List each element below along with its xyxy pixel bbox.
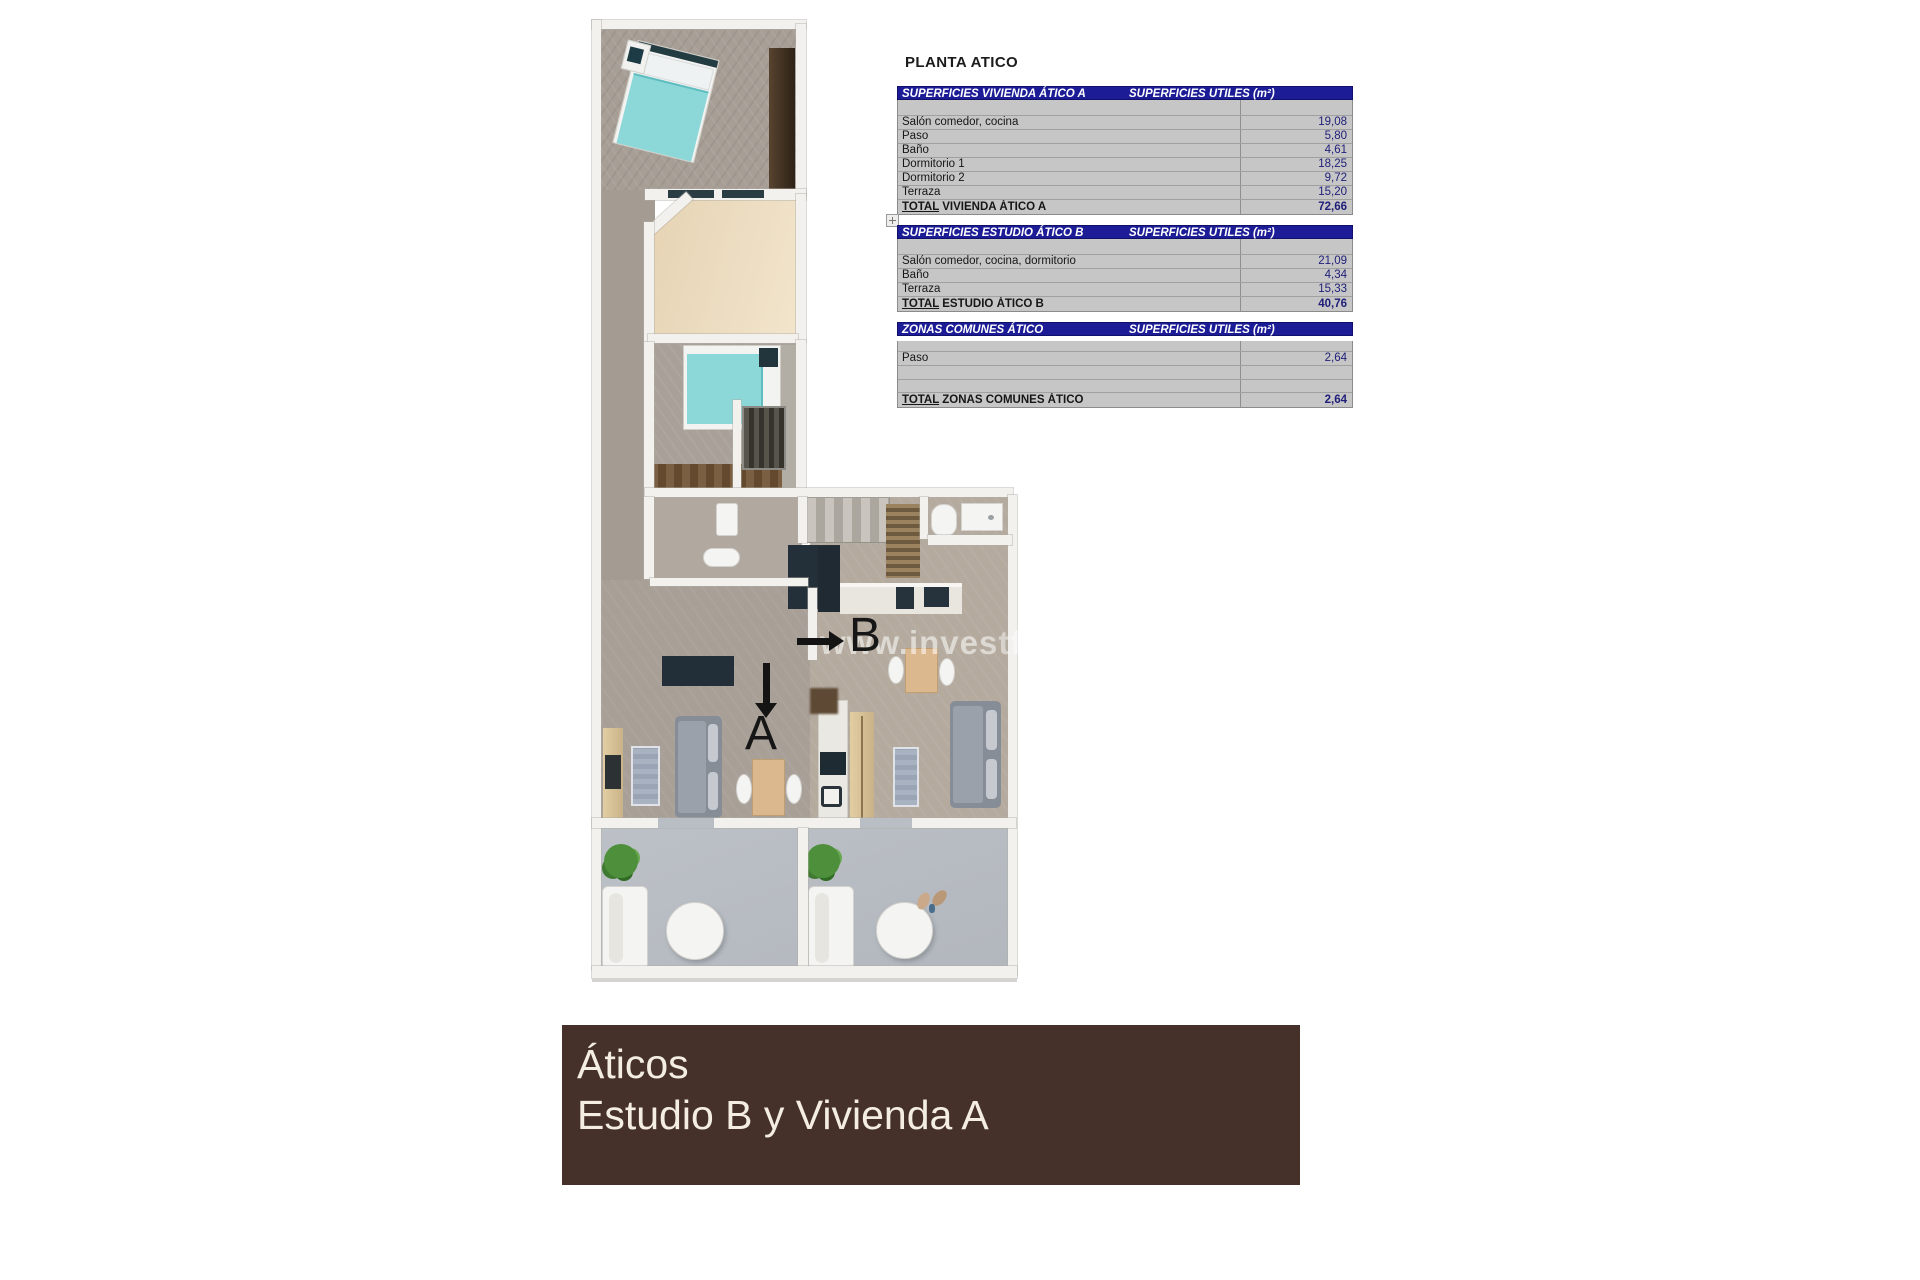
single-bed-headboard bbox=[759, 348, 778, 367]
table-row: Salón comedor, cocina, dormitorio21,09 bbox=[898, 255, 1352, 269]
plant-icon bbox=[806, 844, 840, 878]
table-row: Baño4,34 bbox=[898, 269, 1352, 283]
table-header: SUPERFICIES VIVIENDA ÁTICO A SUPERFICIES… bbox=[897, 86, 1353, 100]
table-row-empty bbox=[898, 100, 1352, 116]
hob-a-icon bbox=[820, 752, 846, 775]
total-rest: ZONAS COMUNES ÁTICO bbox=[939, 394, 1083, 406]
sofa-b-pillow bbox=[986, 710, 997, 750]
wall-bottom bbox=[592, 966, 1017, 978]
table-header: ZONAS COMUNES ÁTICO SUPERFICIES UTILES (… bbox=[897, 322, 1353, 336]
table-row-empty bbox=[898, 341, 1352, 352]
arrow-b-head bbox=[829, 631, 844, 651]
dining-table-a bbox=[752, 759, 785, 816]
table-body: Salón comedor, cocina19,08 Paso5,80 Baño… bbox=[897, 100, 1353, 215]
table-header-left: SUPERFICIES VIVIENDA ÁTICO A bbox=[902, 87, 1086, 101]
table-zonas-comunes: ZONAS COMUNES ÁTICO SUPERFICIES UTILES (… bbox=[897, 322, 1353, 408]
total-word: TOTAL bbox=[902, 201, 939, 213]
table-body: Salón comedor, cocina, dormitorio21,09 B… bbox=[897, 239, 1353, 312]
total-rest: VIVIENDA ÁTICO A bbox=[939, 201, 1046, 213]
wall-terrace-a-right bbox=[796, 24, 806, 196]
unit-a-label: A bbox=[745, 706, 777, 761]
window-slot bbox=[722, 190, 764, 198]
wall-bedroom1-left bbox=[644, 222, 654, 342]
table-row: Paso2,64 bbox=[898, 352, 1352, 366]
terrace-door-gap bbox=[658, 818, 714, 828]
arrow-a-shaft bbox=[763, 663, 770, 705]
table-row-empty bbox=[898, 380, 1352, 393]
arrow-b-shaft bbox=[797, 638, 831, 645]
wardrobe-icon bbox=[769, 48, 795, 190]
total-value: 40,76 bbox=[1240, 297, 1352, 311]
sink-a-icon bbox=[716, 503, 738, 536]
terrace-door-gap bbox=[860, 818, 912, 828]
table-body: Paso2,64 TOTAL ZONAS COMUNES ÁTICO 2,64 bbox=[897, 341, 1353, 408]
round-table-a bbox=[666, 902, 724, 960]
table-row-empty bbox=[898, 239, 1352, 255]
stairs-main bbox=[806, 497, 890, 543]
wall-bedroom2-left bbox=[644, 342, 654, 497]
wall-terrace-band bbox=[592, 818, 1016, 828]
wall-bedroom1-right bbox=[796, 194, 806, 342]
table-row: Baño4,61 bbox=[898, 144, 1352, 158]
wall-stair-divider bbox=[733, 400, 741, 492]
table-total-row: TOTAL ESTUDIO ÁTICO B 40,76 bbox=[898, 297, 1352, 311]
sink-b-icon bbox=[961, 503, 1003, 531]
table-header-right: SUPERFICIES UTILES (m²) bbox=[1129, 87, 1275, 101]
plant-icon bbox=[604, 844, 638, 878]
unit-b-label: B bbox=[849, 608, 881, 663]
wall-bath-stairs bbox=[798, 497, 807, 543]
sofa-b-seat bbox=[953, 706, 983, 803]
rug-a bbox=[631, 746, 660, 806]
banner-line1: Áticos bbox=[577, 1039, 689, 1089]
table-row: Terraza15,20 bbox=[898, 186, 1352, 200]
nightstand-top bbox=[627, 46, 644, 64]
table-row: Dormitorio 29,72 bbox=[898, 172, 1352, 186]
chair-a1 bbox=[736, 774, 752, 804]
table-row: Dormitorio 118,25 bbox=[898, 158, 1352, 172]
wall-bottom-shadow bbox=[592, 978, 1017, 982]
chair-b2 bbox=[939, 658, 955, 686]
cabinet-b bbox=[850, 712, 874, 822]
sink-b-bowl bbox=[988, 515, 994, 520]
sink-b2-icon bbox=[924, 587, 949, 607]
louver-door bbox=[886, 504, 920, 578]
cabinet-b-seam bbox=[861, 716, 863, 818]
chair-a2 bbox=[786, 774, 802, 804]
title-banner: Áticos Estudio B y Vivienda A bbox=[562, 1025, 1300, 1185]
lounger-b-pad bbox=[815, 893, 829, 963]
wall-bath-top bbox=[645, 488, 1013, 497]
table-estudio-b: SUPERFICIES ESTUDIO ÁTICO B SUPERFICIES … bbox=[897, 225, 1353, 312]
doorway-brown bbox=[810, 688, 838, 714]
table-total-row: TOTAL ZONAS COMUNES ÁTICO 2,64 bbox=[898, 393, 1352, 407]
table-total-row: TOTAL VIVIENDA ÁTICO A 72,66 bbox=[898, 200, 1352, 214]
wall-terrace-divider bbox=[798, 828, 808, 968]
lounger-b bbox=[808, 886, 854, 970]
total-rest: ESTUDIO ÁTICO B bbox=[939, 298, 1044, 310]
total-word: TOTAL bbox=[902, 394, 939, 406]
decor-blue bbox=[929, 904, 935, 913]
sofa-a bbox=[675, 716, 722, 818]
table-header-right: SUPERFICIES UTILES (m²) bbox=[1129, 323, 1275, 337]
table-row: Salón comedor, cocina19,08 bbox=[898, 116, 1352, 130]
table-row: Terraza15,33 bbox=[898, 283, 1352, 297]
sofa-b-pillow2 bbox=[986, 759, 997, 799]
appliance-a-icon bbox=[821, 786, 842, 807]
table-vivienda-a: SUPERFICIES VIVIENDA ÁTICO A SUPERFICIES… bbox=[897, 86, 1353, 215]
wall-top bbox=[592, 20, 806, 29]
toilet-b-icon bbox=[931, 504, 957, 537]
rug-b bbox=[893, 747, 919, 807]
sandals-decor bbox=[916, 888, 952, 914]
wall-bath-left bbox=[644, 497, 654, 579]
table-header-right: SUPERFICIES UTILES (m²) bbox=[1129, 226, 1275, 240]
wall-bedroom2-right bbox=[796, 340, 806, 497]
wall-bedroom-divider bbox=[648, 334, 798, 343]
total-value: 72,66 bbox=[1240, 200, 1352, 214]
tv-bench-dark bbox=[662, 656, 734, 686]
sofa-a-seat bbox=[678, 721, 706, 813]
toilet-a-icon bbox=[703, 548, 740, 567]
fridge-b-icon bbox=[818, 546, 840, 612]
sofa-a-pillow bbox=[708, 724, 718, 762]
wall-bathb-bottom bbox=[928, 535, 1012, 545]
total-word: TOTAL bbox=[902, 298, 939, 310]
total-value: 2,64 bbox=[1240, 393, 1352, 407]
sofa-b bbox=[950, 701, 1001, 808]
tv-a-icon bbox=[605, 755, 621, 789]
wall-bath-bottom bbox=[650, 578, 808, 586]
table-row: Paso5,80 bbox=[898, 130, 1352, 144]
bedroom1-floor bbox=[652, 196, 798, 340]
table-row-empty bbox=[898, 366, 1352, 380]
page-title: PLANTA ATICO bbox=[905, 54, 1018, 71]
table-header-left: ZONAS COMUNES ÁTICO bbox=[902, 323, 1043, 337]
wall-bathb-left bbox=[920, 497, 928, 539]
lounger-a bbox=[602, 886, 648, 970]
wall-ab-divider bbox=[808, 588, 817, 660]
table-header: SUPERFICIES ESTUDIO ÁTICO B SUPERFICIES … bbox=[897, 225, 1353, 239]
wall-studio-right bbox=[1008, 495, 1017, 975]
sofa-a-pillow2 bbox=[708, 772, 718, 810]
table-header-left: SUPERFICIES ESTUDIO ÁTICO B bbox=[902, 226, 1083, 240]
hob-b-icon bbox=[896, 587, 914, 609]
lounger-a-pad bbox=[609, 893, 623, 963]
banner-line2: Estudio B y Vivienda A bbox=[577, 1090, 989, 1140]
stairs-upper-flight bbox=[742, 406, 786, 470]
